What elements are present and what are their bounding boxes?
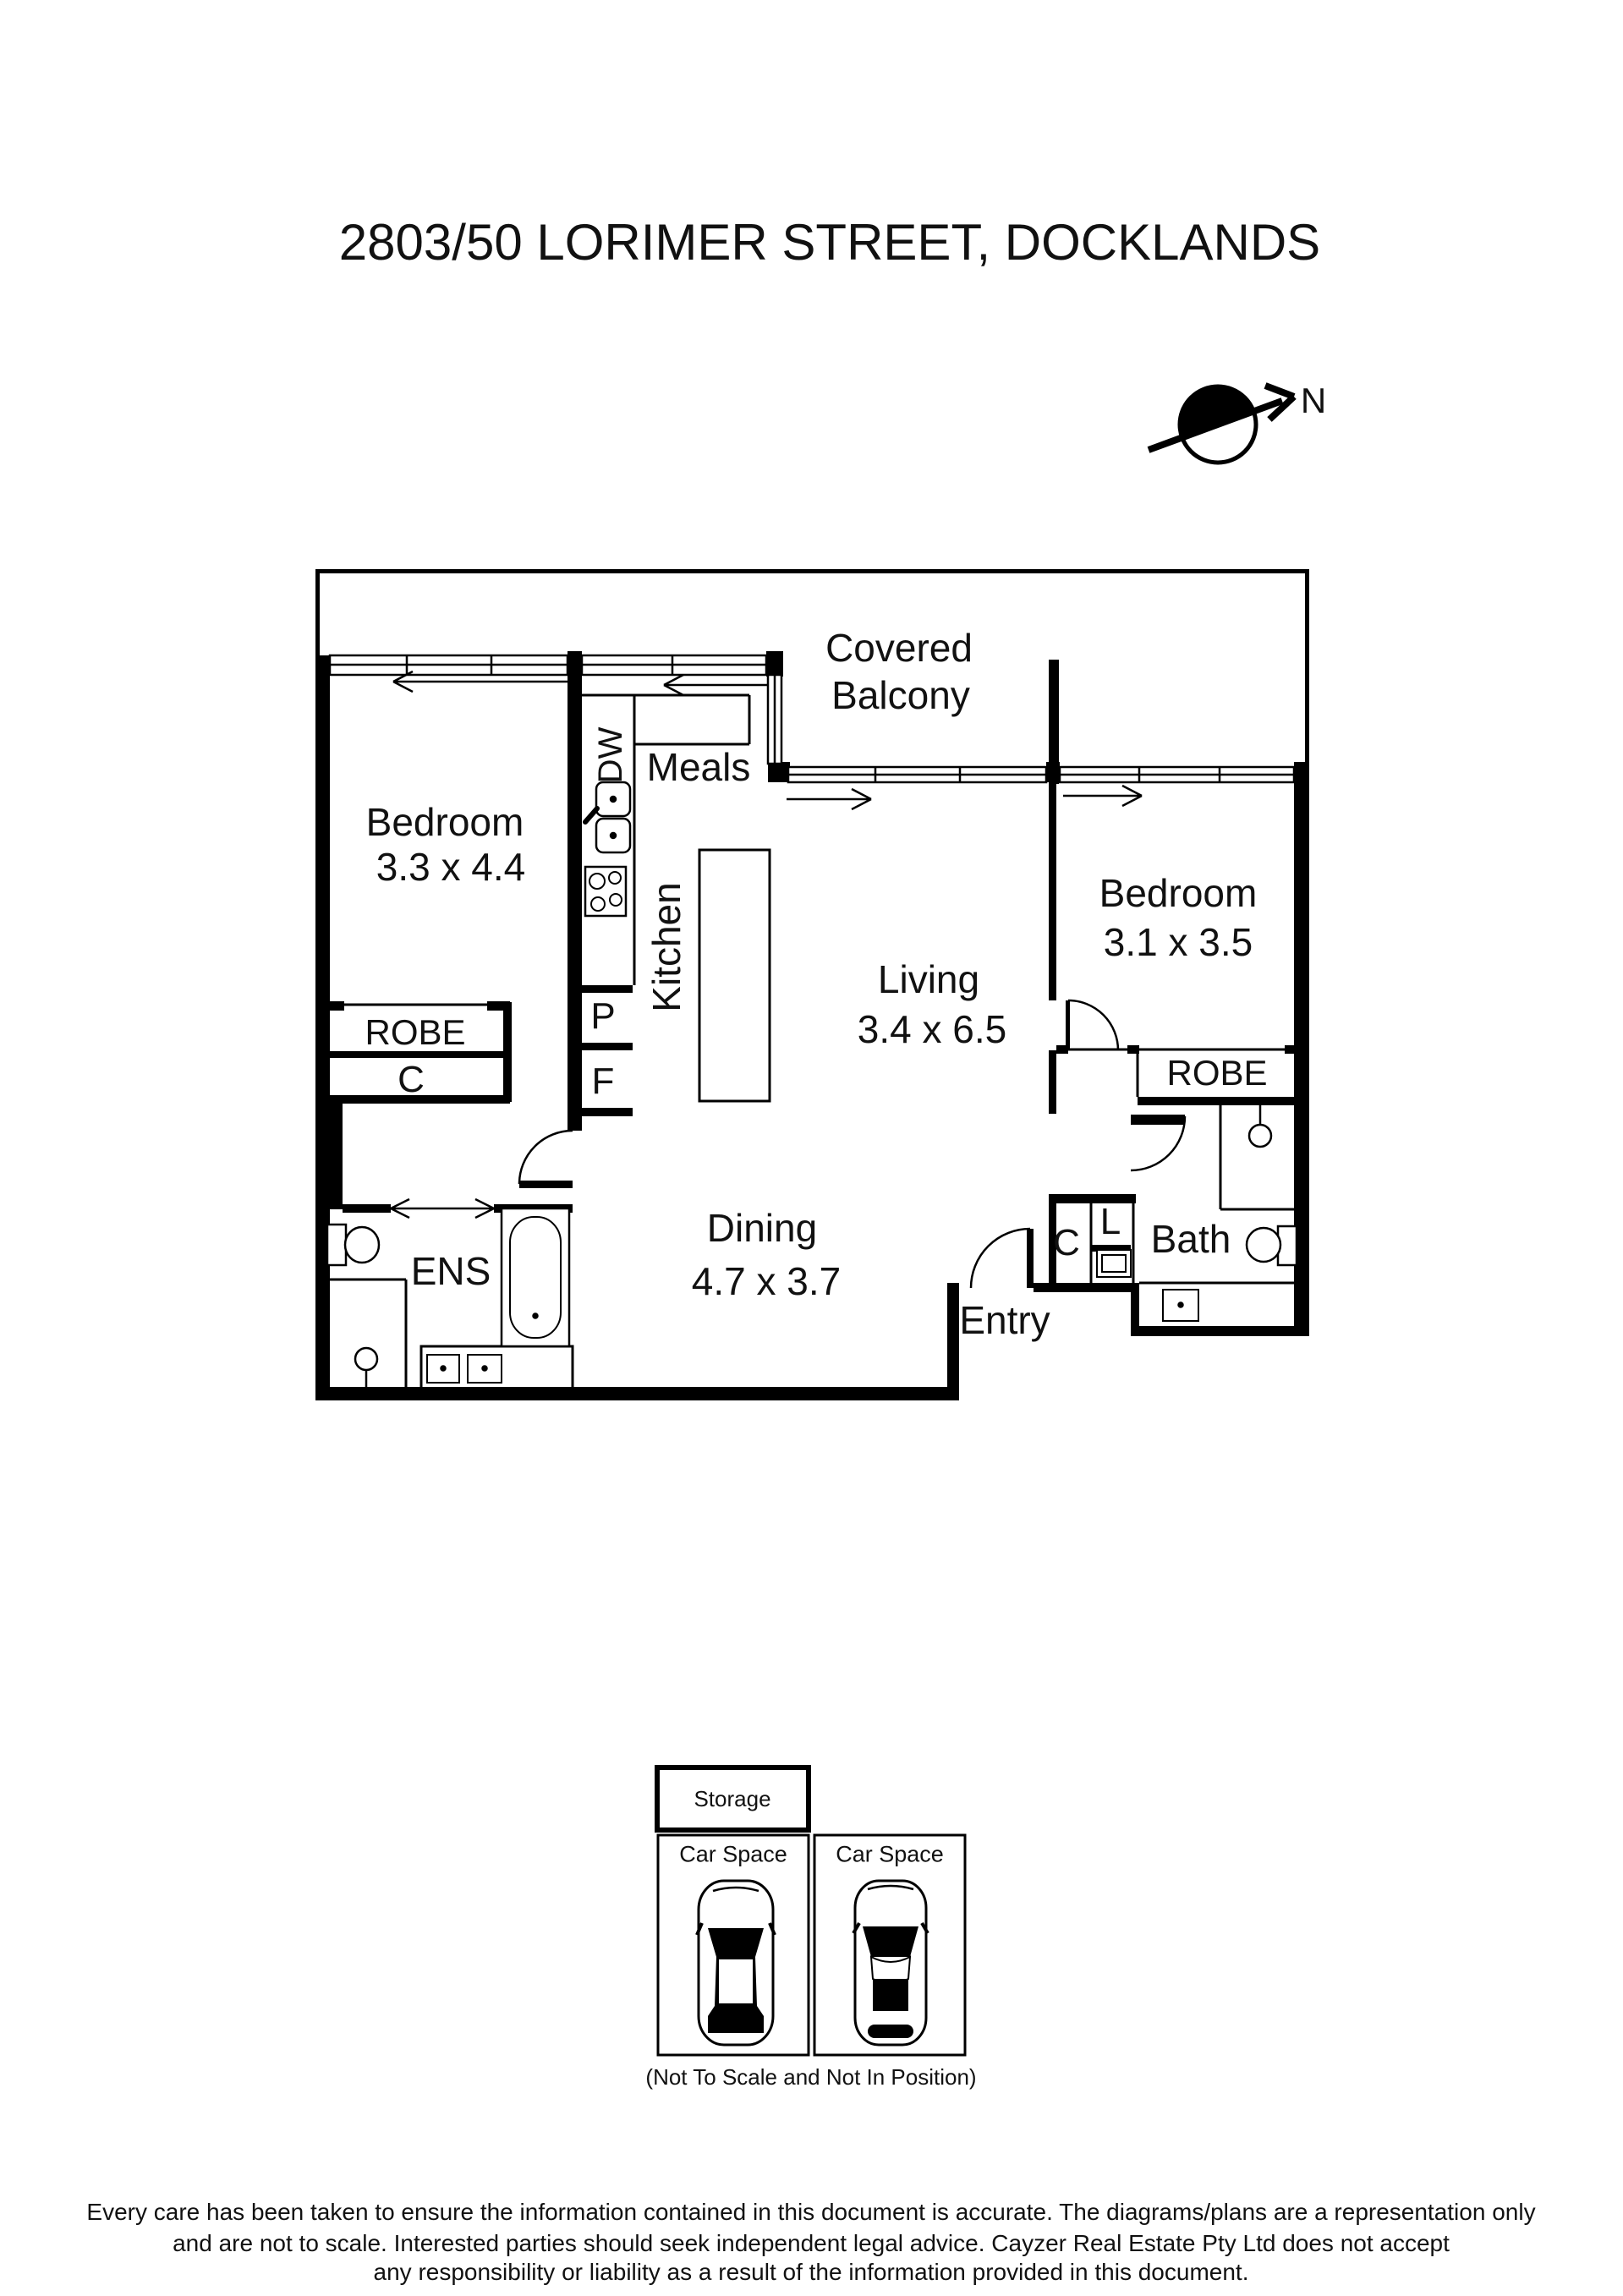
disclaimer-line2: and are not to scale. Interested parties… <box>173 2232 1450 2255</box>
entry-label: Entry <box>959 1301 1050 1340</box>
laundry-label: L <box>1100 1203 1121 1241</box>
ensuite-label: ENS <box>411 1252 491 1290</box>
washer-icon <box>1097 1250 1131 1277</box>
bath-vanity-basin <box>1163 1290 1198 1321</box>
bedroom2-door <box>1066 1000 1118 1050</box>
bath-label: Bath <box>1151 1219 1231 1258</box>
bathtub-icon <box>502 1208 569 1346</box>
kitchen-label: Kitchen <box>647 882 686 1011</box>
kitchen-sink-icon <box>585 782 630 852</box>
dining-dimensions: 4.7 x 3.7 <box>692 1262 841 1301</box>
dishwasher-label: DW <box>594 727 628 784</box>
floorplan-page: 2803/50 LORIMER STREET, DOCKLANDS N Cove… <box>0 0 1623 2296</box>
cooktop-icon <box>585 867 626 916</box>
entry-door <box>971 1229 1034 1288</box>
storage-label: Storage <box>694 1788 770 1810</box>
balcony-label-line2: Balcony <box>831 676 970 715</box>
living-label: Living <box>878 960 979 999</box>
bath-shower-icon <box>1249 1105 1271 1147</box>
dining-label: Dining <box>707 1208 817 1247</box>
disclaimer-line1: Every care has been taken to ensure the … <box>86 2200 1535 2224</box>
balcony-label-line1: Covered <box>825 628 973 667</box>
car-1-icon <box>697 1881 775 2045</box>
bath-closet-label: C <box>1053 1225 1080 1262</box>
north-arrow-icon <box>1149 386 1294 463</box>
bedroom2-dimensions: 3.1 x 3.5 <box>1104 923 1253 962</box>
car-2-icon <box>853 1881 928 2045</box>
fridge-label: F <box>592 1063 615 1100</box>
ens-toilet-icon <box>327 1225 379 1265</box>
ens-vanity-basins <box>427 1355 502 1383</box>
not-to-scale-note: (Not To Scale and Not In Position) <box>645 2066 976 2088</box>
car-space-1-label: Car Space <box>679 1844 787 1866</box>
page-title: 2803/50 LORIMER STREET, DOCKLANDS <box>339 217 1320 268</box>
bedroom1-label: Bedroom <box>366 803 524 841</box>
pantry-label: P <box>590 998 615 1035</box>
bath-toilet-icon <box>1247 1226 1297 1265</box>
bedroom2-robe-label: ROBE <box>1166 1055 1267 1091</box>
windows <box>330 655 1294 782</box>
bedroom1-robe-label: ROBE <box>365 1015 465 1050</box>
hall-door-arc <box>519 1131 573 1184</box>
bedroom2-label: Bedroom <box>1099 874 1258 912</box>
floor-plan-drawing <box>0 0 1623 2296</box>
ens-shower-icon <box>355 1348 377 1391</box>
sliding-door-arrows <box>391 671 1142 1218</box>
bedroom1-dimensions: 3.3 x 4.4 <box>376 847 525 886</box>
north-label: N <box>1301 383 1326 419</box>
meals-label: Meals <box>647 748 751 786</box>
car-space-2-label: Car Space <box>836 1844 944 1866</box>
bedroom1-closet-label: C <box>398 1061 425 1099</box>
disclaimer-line3: any responsibility or liability as a res… <box>374 2260 1249 2284</box>
living-dimensions: 3.4 x 6.5 <box>858 1010 1006 1049</box>
